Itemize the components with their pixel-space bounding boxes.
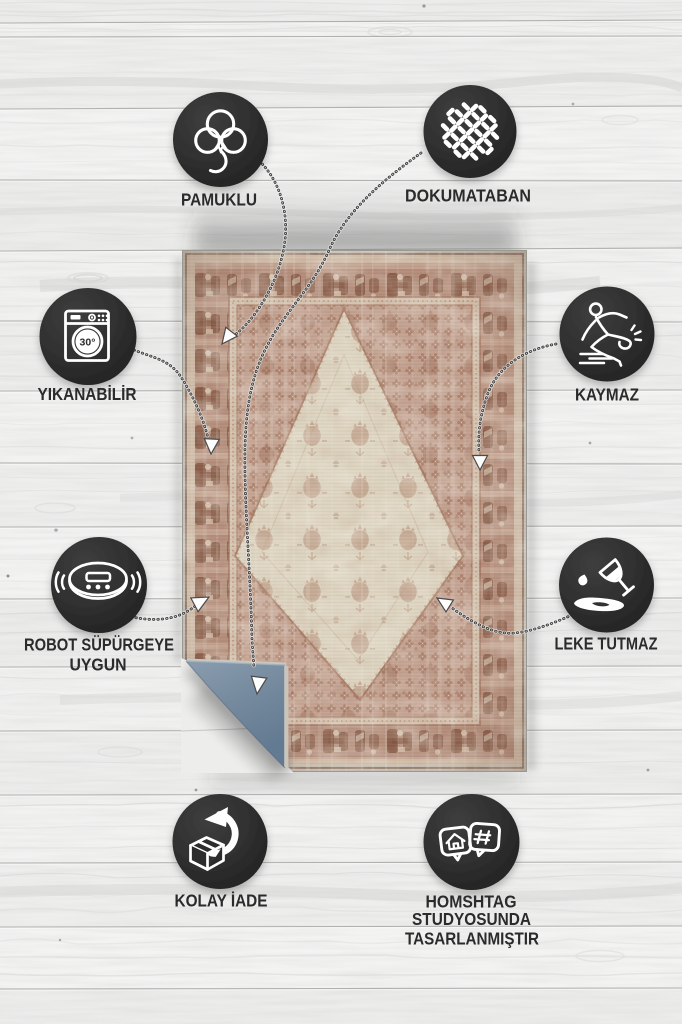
svg-text:DOKUMATABAN: DOKUMATABAN [405, 186, 531, 206]
svg-text:LEKE TUTMAZ: LEKE TUTMAZ [555, 634, 658, 654]
svg-text:YIKANABİLİR: YIKANABİLİR [38, 384, 137, 404]
svg-text:STUDYOSUNDA: STUDYOSUNDA [412, 909, 531, 929]
svg-text:TASARLANMIŞTIR: TASARLANMIŞTIR [405, 928, 539, 948]
svg-text:30°: 30° [80, 337, 96, 349]
svg-text:PAMUKLU: PAMUKLU [181, 190, 257, 210]
svg-text:KOLAY İADE: KOLAY İADE [175, 891, 268, 911]
svg-text:UYGUN: UYGUN [70, 655, 127, 675]
svg-text:ROBOT SÜPÜRGEYE: ROBOT SÜPÜRGEYE [24, 635, 174, 655]
svg-text:KAYMAZ: KAYMAZ [575, 385, 639, 405]
